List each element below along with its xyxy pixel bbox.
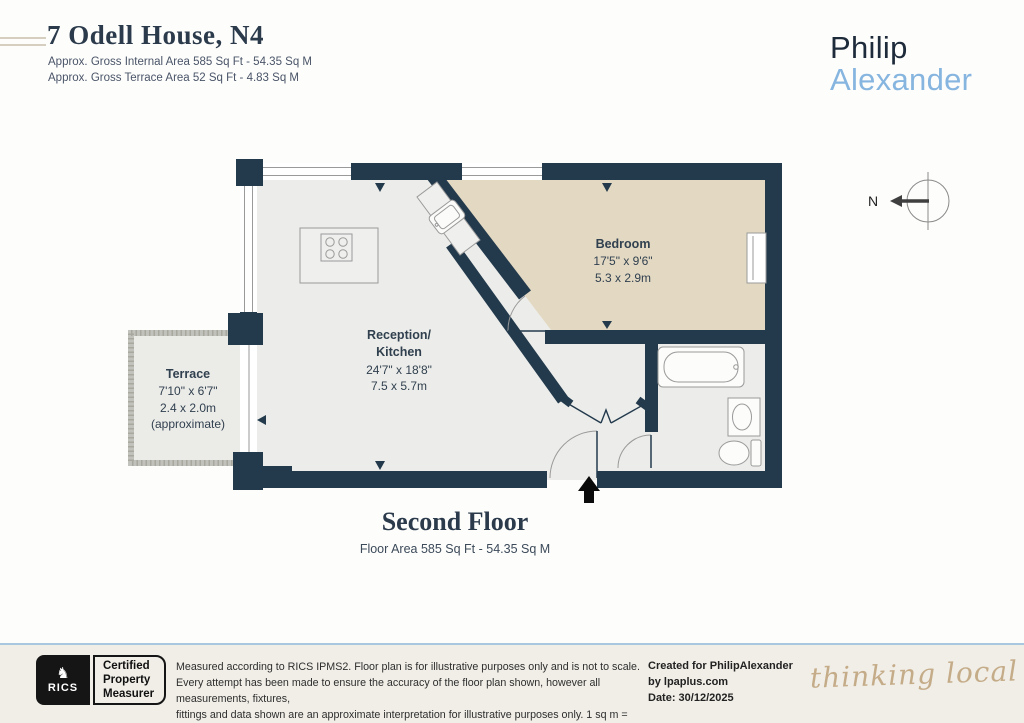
rics-cert-line1: Certified: [103, 659, 154, 673]
credits-created-for: Created for PhilipAlexander: [648, 659, 793, 675]
compass-north-label: N: [868, 193, 878, 209]
window-bedroom-right: [747, 233, 766, 283]
floor-caption: Second Floor Floor Area 585 Sq Ft - 54.3…: [255, 507, 655, 556]
disclaimer-line1: Measured according to RICS IPMS2. Floor …: [176, 659, 646, 675]
window-left: [240, 186, 257, 312]
terrace-dims-imperial: 7'10" x 6'7": [130, 383, 246, 400]
floor-area-subtitle: Floor Area 585 Sq Ft - 54.35 Sq M: [255, 542, 655, 556]
window-top-mid: [462, 163, 542, 180]
bathtub-icon: [658, 347, 744, 387]
toilet-icon: [719, 440, 761, 466]
agency-logo: Philip Alexander: [830, 32, 972, 95]
compass-icon: [890, 172, 949, 230]
bedroom-dims-imperial: 17'5" x 9'6": [549, 253, 697, 270]
rics-cert-line3: Measurer: [103, 687, 154, 701]
gross-internal-area: Approx. Gross Internal Area 585 Sq Ft - …: [48, 56, 312, 68]
credits-by: by lpaplus.com: [648, 675, 793, 691]
bedroom-label: Bedroom 17'5" x 9'6" 5.3 x 2.9m: [549, 236, 697, 286]
rics-badge: ♞ RICS Certified Property Measurer: [36, 655, 166, 705]
header-corner-mark-icon: [0, 38, 46, 45]
reception-name-line1: Reception/: [329, 327, 469, 344]
disclaimer-line2: Every attempt has been made to ensure th…: [176, 675, 646, 707]
floor-plan-drawing: [0, 0, 1024, 723]
window-top-left: [263, 163, 351, 180]
logo-line-alexander: Alexander: [830, 64, 972, 96]
entry-arrow-icon: [578, 476, 600, 503]
rics-brand: RICS: [48, 682, 78, 694]
rics-cert-line2: Property: [103, 673, 154, 687]
bedroom-dims-metric: 5.3 x 2.9m: [549, 270, 697, 287]
reception-kitchen-label: Reception/ Kitchen 24'7" x 18'8" 7.5 x 5…: [329, 327, 469, 395]
terrace-label: Terrace 7'10" x 6'7" 2.4 x 2.0m (approxi…: [130, 366, 246, 433]
credits: Created for PhilipAlexander by lpaplus.c…: [648, 659, 793, 707]
terrace-dims-metric: 2.4 x 2.0m: [130, 400, 246, 417]
bedroom-name: Bedroom: [549, 236, 697, 253]
disclaimer-line3: fittings and data shown are an approxima…: [176, 707, 646, 723]
rics-lion-icon: ♞: [56, 666, 69, 681]
page-title: 7 Odell House, N4: [47, 20, 264, 51]
disclaimer: Measured according to RICS IPMS2. Floor …: [176, 659, 646, 723]
logo-line-philip: Philip: [830, 32, 972, 64]
reception-dims-metric: 7.5 x 5.7m: [329, 378, 469, 395]
rics-certification: Certified Property Measurer: [93, 655, 166, 705]
reception-name-line2: Kitchen: [329, 344, 469, 361]
credits-date: Date: 30/12/2025: [648, 691, 793, 707]
rics-badge-left: ♞ RICS: [36, 655, 90, 705]
reception-dims-imperial: 24'7" x 18'8": [329, 362, 469, 379]
floor-title: Second Floor: [255, 507, 655, 537]
kitchen-island: [300, 228, 378, 283]
bathroom-sink-icon: [728, 398, 760, 436]
floorplan-page: 7 Odell House, N4 Approx. Gross Internal…: [0, 0, 1024, 723]
terrace-name: Terrace: [130, 366, 246, 383]
terrace-note: (approximate): [130, 416, 246, 433]
gross-terrace-area: Approx. Gross Terrace Area 52 Sq Ft - 4.…: [48, 72, 299, 84]
